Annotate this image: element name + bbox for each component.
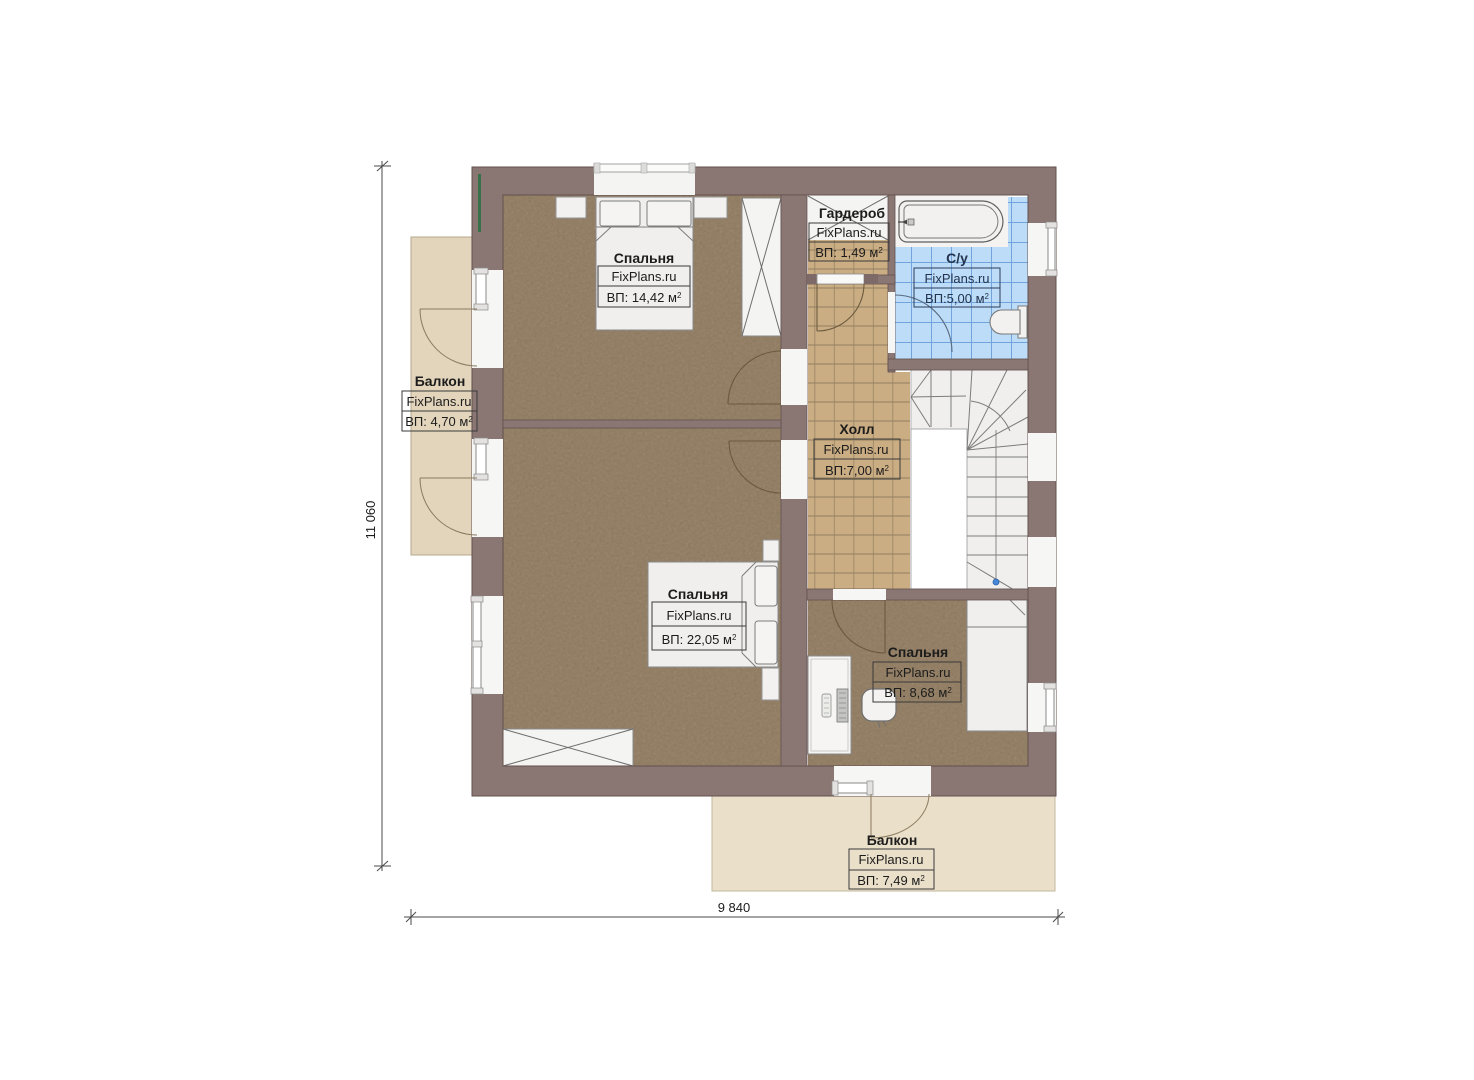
- svg-text:9 840: 9 840: [718, 900, 751, 915]
- svg-text:ВП: 22,05 м2: ВП: 22,05 м2: [662, 632, 737, 647]
- svg-text:С/у: С/у: [946, 250, 968, 266]
- svg-text:Гардероб: Гардероб: [819, 205, 886, 221]
- svg-text:ВП: 8,68 м2: ВП: 8,68 м2: [884, 685, 952, 700]
- svg-text:Балкон: Балкон: [415, 373, 466, 389]
- svg-text:Спальня: Спальня: [614, 250, 674, 266]
- svg-text:FixPlans.ru: FixPlans.ru: [924, 271, 989, 286]
- svg-text:FixPlans.ru: FixPlans.ru: [611, 269, 676, 284]
- svg-text:Холл: Холл: [839, 421, 874, 437]
- svg-text:FixPlans.ru: FixPlans.ru: [666, 608, 731, 623]
- svg-text:FixPlans.ru: FixPlans.ru: [816, 225, 881, 240]
- svg-text:FixPlans.ru: FixPlans.ru: [885, 665, 950, 680]
- svg-text:Спальня: Спальня: [668, 586, 728, 602]
- svg-text:FixPlans.ru: FixPlans.ru: [823, 442, 888, 457]
- svg-text:FixPlans.ru: FixPlans.ru: [858, 852, 923, 867]
- svg-text:ВП:7,00 м2: ВП:7,00 м2: [825, 463, 889, 478]
- svg-text:Балкон: Балкон: [867, 832, 918, 848]
- svg-text:ВП: 1,49 м2: ВП: 1,49 м2: [815, 245, 883, 260]
- svg-text:FixPlans.ru: FixPlans.ru: [406, 394, 471, 409]
- svg-text:ВП: 4,70 м2: ВП: 4,70 м2: [405, 414, 473, 429]
- svg-text:Спальня: Спальня: [888, 644, 948, 660]
- svg-text:11 060: 11 060: [363, 501, 378, 540]
- svg-text:ВП: 14,42 м2: ВП: 14,42 м2: [607, 290, 682, 305]
- svg-text:ВП:5,00 м2: ВП:5,00 м2: [925, 291, 989, 306]
- svg-text:ВП: 7,49 м2: ВП: 7,49 м2: [857, 873, 925, 888]
